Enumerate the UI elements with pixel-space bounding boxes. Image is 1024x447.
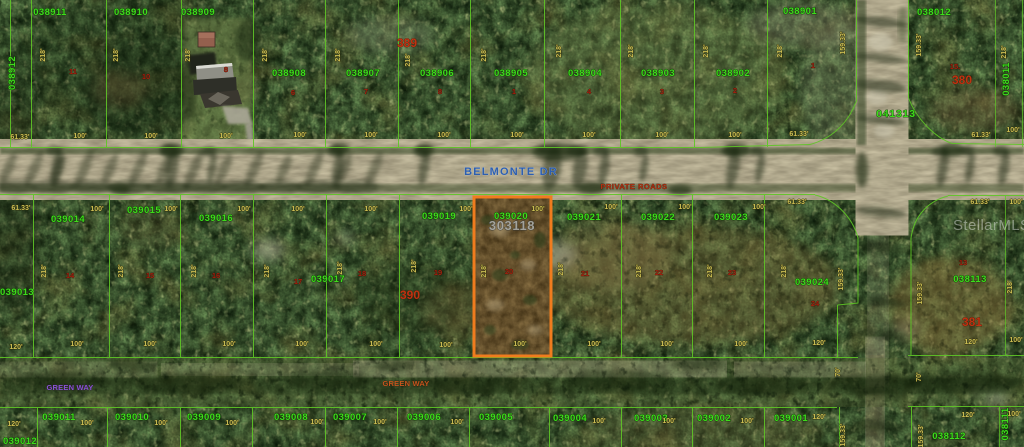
svg-text:100': 100' bbox=[450, 419, 464, 426]
svg-text:GREEN WAY: GREEN WAY bbox=[47, 383, 94, 392]
svg-text:7: 7 bbox=[364, 87, 368, 96]
svg-text:038903: 038903 bbox=[641, 68, 675, 79]
svg-text:039005: 039005 bbox=[479, 412, 513, 423]
svg-text:039024: 039024 bbox=[795, 277, 829, 288]
svg-text:19: 19 bbox=[434, 268, 442, 277]
svg-text:StellarMLS: StellarMLS bbox=[953, 217, 1024, 234]
svg-text:159.33': 159.33' bbox=[840, 31, 847, 54]
svg-text:100': 100' bbox=[219, 133, 233, 140]
svg-text:039014: 039014 bbox=[51, 214, 85, 225]
svg-text:039006: 039006 bbox=[407, 412, 441, 423]
svg-text:218': 218' bbox=[191, 264, 198, 278]
svg-text:70': 70' bbox=[835, 367, 842, 377]
svg-text:039007: 039007 bbox=[333, 412, 367, 423]
svg-text:038904: 038904 bbox=[568, 68, 602, 79]
svg-text:120': 120' bbox=[812, 340, 826, 347]
svg-text:1: 1 bbox=[811, 61, 815, 70]
svg-text:100': 100' bbox=[154, 420, 168, 427]
svg-text:100': 100' bbox=[678, 204, 692, 211]
svg-text:100': 100' bbox=[237, 206, 251, 213]
svg-text:038909: 038909 bbox=[181, 7, 215, 18]
svg-text:039009: 039009 bbox=[187, 412, 221, 423]
svg-text:218': 218' bbox=[556, 44, 563, 58]
svg-text:218': 218' bbox=[118, 264, 125, 278]
svg-text:BELMONTE DR: BELMONTE DR bbox=[464, 166, 558, 178]
svg-text:159.33': 159.33' bbox=[916, 33, 923, 56]
svg-text:218': 218' bbox=[703, 44, 710, 58]
svg-text:100': 100' bbox=[80, 420, 94, 427]
svg-text:100': 100' bbox=[369, 341, 383, 348]
svg-text:038911: 038911 bbox=[33, 7, 67, 18]
svg-text:15: 15 bbox=[146, 271, 154, 280]
svg-text:100': 100' bbox=[143, 341, 157, 348]
svg-text:PRIVATE ROADS: PRIVATE ROADS bbox=[600, 182, 667, 191]
svg-text:303118: 303118 bbox=[489, 218, 535, 233]
svg-text:100': 100' bbox=[373, 419, 387, 426]
svg-text:18: 18 bbox=[358, 269, 366, 278]
svg-text:120': 120' bbox=[7, 421, 21, 428]
svg-text:100': 100' bbox=[740, 418, 754, 425]
svg-text:100': 100' bbox=[437, 132, 451, 139]
svg-text:218': 218' bbox=[113, 48, 120, 62]
svg-text:100': 100' bbox=[293, 132, 307, 139]
svg-text:70': 70' bbox=[916, 372, 923, 382]
svg-text:218': 218' bbox=[264, 264, 271, 278]
svg-text:6: 6 bbox=[291, 88, 295, 97]
svg-text:389: 389 bbox=[397, 36, 417, 50]
svg-text:159.33': 159.33' bbox=[840, 423, 847, 446]
svg-text:11: 11 bbox=[69, 67, 77, 76]
svg-text:15.: 15. bbox=[950, 62, 960, 71]
svg-text:039019: 039019 bbox=[422, 211, 456, 222]
svg-text:13: 13 bbox=[959, 258, 967, 267]
svg-text:100': 100' bbox=[364, 132, 378, 139]
svg-text:100': 100' bbox=[164, 206, 178, 213]
svg-text:100': 100' bbox=[660, 341, 674, 348]
svg-text:039008: 039008 bbox=[274, 412, 308, 423]
svg-text:23: 23 bbox=[728, 268, 736, 277]
svg-text:218': 218' bbox=[481, 264, 488, 278]
svg-text:039004: 039004 bbox=[553, 413, 587, 424]
svg-text:120': 120' bbox=[964, 339, 978, 346]
svg-text:038011: 038011 bbox=[1001, 62, 1012, 96]
svg-text:038902: 038902 bbox=[716, 68, 750, 79]
svg-text:041313: 041313 bbox=[876, 108, 916, 120]
svg-text:8: 8 bbox=[438, 87, 442, 96]
svg-text:218': 218' bbox=[41, 264, 48, 278]
svg-text:039012: 039012 bbox=[3, 436, 37, 447]
svg-text:039022: 039022 bbox=[641, 212, 675, 223]
svg-text:381: 381 bbox=[962, 315, 982, 329]
svg-text:100': 100' bbox=[662, 418, 676, 425]
svg-text:380: 380 bbox=[952, 73, 972, 87]
svg-text:218': 218' bbox=[185, 48, 192, 62]
svg-text:17: 17 bbox=[294, 277, 302, 286]
svg-text:039001: 039001 bbox=[774, 413, 808, 424]
svg-text:100': 100' bbox=[1009, 199, 1023, 206]
svg-text:100': 100' bbox=[310, 419, 324, 426]
svg-text:100': 100' bbox=[734, 341, 748, 348]
svg-text:159.33': 159.33' bbox=[918, 424, 925, 447]
svg-text:16: 16 bbox=[212, 271, 220, 280]
svg-text:100': 100' bbox=[439, 342, 453, 349]
svg-text:100': 100' bbox=[1006, 127, 1020, 134]
svg-text:100': 100' bbox=[459, 206, 473, 213]
svg-text:038908: 038908 bbox=[272, 68, 306, 79]
svg-text:218': 218' bbox=[777, 44, 784, 58]
svg-text:61.33': 61.33' bbox=[971, 132, 991, 139]
svg-text:GREEN WAY: GREEN WAY bbox=[383, 379, 430, 388]
svg-text:100': 100' bbox=[222, 341, 236, 348]
svg-text:218': 218' bbox=[628, 44, 635, 58]
svg-text:038905: 038905 bbox=[494, 68, 528, 79]
svg-text:8: 8 bbox=[224, 65, 228, 74]
svg-text:100': 100' bbox=[510, 132, 524, 139]
svg-text:100': 100' bbox=[513, 341, 527, 348]
svg-text:100': 100' bbox=[587, 341, 601, 348]
svg-text:100': 100' bbox=[70, 341, 84, 348]
svg-text:038113: 038113 bbox=[953, 274, 987, 285]
svg-text:20: 20 bbox=[505, 267, 513, 276]
svg-text:039021: 039021 bbox=[567, 212, 601, 223]
svg-text:218': 218' bbox=[636, 264, 643, 278]
svg-text:100': 100' bbox=[73, 133, 87, 140]
svg-text:100': 100' bbox=[1009, 337, 1023, 344]
svg-text:039011: 039011 bbox=[42, 412, 76, 423]
svg-text:159.33': 159.33' bbox=[838, 267, 845, 290]
svg-text:218': 218' bbox=[781, 264, 788, 278]
svg-text:100': 100' bbox=[752, 204, 766, 211]
svg-text:218': 218' bbox=[405, 53, 412, 67]
svg-text:039010: 039010 bbox=[115, 412, 149, 423]
svg-text:100': 100' bbox=[90, 206, 104, 213]
svg-text:3: 3 bbox=[660, 87, 664, 96]
svg-text:120': 120' bbox=[9, 344, 23, 351]
svg-text:039002: 039002 bbox=[697, 413, 731, 424]
svg-text:61.33': 61.33' bbox=[10, 134, 30, 141]
svg-text:038907: 038907 bbox=[346, 68, 380, 79]
svg-text:120': 120' bbox=[812, 414, 826, 421]
svg-text:61.33': 61.33' bbox=[11, 205, 31, 212]
svg-text:100': 100' bbox=[291, 206, 305, 213]
svg-text:218': 218' bbox=[481, 48, 488, 62]
svg-text:039023: 039023 bbox=[714, 212, 748, 223]
svg-text:24: 24 bbox=[811, 299, 820, 308]
svg-text:218': 218' bbox=[262, 48, 269, 62]
svg-text:038910: 038910 bbox=[114, 7, 148, 18]
svg-text:038112: 038112 bbox=[932, 431, 966, 442]
svg-text:1: 1 bbox=[512, 87, 516, 96]
svg-text:2: 2 bbox=[733, 86, 737, 95]
svg-text:100': 100' bbox=[295, 341, 309, 348]
svg-text:100': 100' bbox=[144, 133, 158, 140]
svg-text:61.33': 61.33' bbox=[789, 131, 809, 138]
svg-text:218': 218' bbox=[558, 262, 565, 276]
svg-text:038901: 038901 bbox=[783, 6, 817, 17]
svg-text:100': 100' bbox=[728, 132, 742, 139]
svg-text:100': 100' bbox=[655, 132, 669, 139]
svg-text:218': 218' bbox=[707, 264, 714, 278]
svg-text:218': 218' bbox=[411, 259, 418, 273]
svg-text:039015: 039015 bbox=[127, 205, 161, 216]
svg-text:100': 100' bbox=[1007, 411, 1021, 418]
svg-text:038012: 038012 bbox=[917, 7, 951, 18]
svg-text:039016: 039016 bbox=[199, 213, 233, 224]
svg-text:61.33': 61.33' bbox=[970, 199, 990, 206]
svg-text:14: 14 bbox=[66, 271, 75, 280]
svg-text:038912: 038912 bbox=[7, 56, 18, 90]
svg-text:100': 100' bbox=[582, 132, 596, 139]
svg-text:218': 218' bbox=[40, 48, 47, 62]
svg-text:100': 100' bbox=[592, 418, 606, 425]
svg-text:390: 390 bbox=[400, 288, 420, 302]
svg-text:10: 10 bbox=[142, 72, 150, 81]
svg-text:100': 100' bbox=[364, 206, 378, 213]
svg-text:120': 120' bbox=[961, 412, 975, 419]
svg-text:22: 22 bbox=[655, 268, 663, 277]
svg-text:100': 100' bbox=[531, 206, 545, 213]
svg-text:039013: 039013 bbox=[0, 287, 34, 298]
svg-text:218': 218' bbox=[335, 48, 342, 62]
svg-text:218': 218' bbox=[337, 261, 344, 275]
svg-text:218': 218' bbox=[1007, 280, 1014, 294]
svg-text:218': 218' bbox=[1001, 45, 1008, 59]
svg-text:100': 100' bbox=[225, 420, 239, 427]
svg-text:61.33': 61.33' bbox=[787, 199, 807, 206]
svg-text:159.33': 159.33' bbox=[917, 281, 924, 304]
svg-text:038906: 038906 bbox=[420, 68, 454, 79]
svg-text:100': 100' bbox=[604, 204, 618, 211]
svg-text:21: 21 bbox=[581, 269, 589, 278]
